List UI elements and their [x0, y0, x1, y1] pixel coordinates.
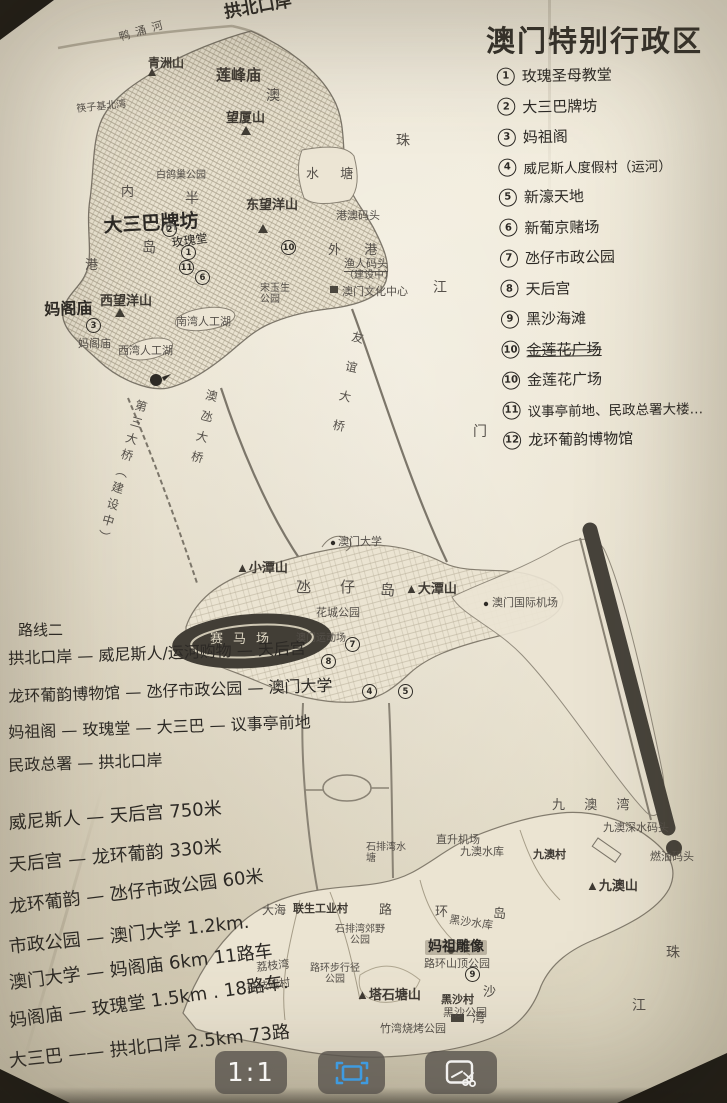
legend-item: 10金莲花广场	[502, 366, 703, 390]
roundabout	[323, 775, 371, 801]
crop-annotate-icon	[442, 1058, 480, 1088]
actual-size-button[interactable]: 1:1	[215, 1051, 287, 1094]
legend-item-label: 新濠天地	[524, 185, 584, 207]
aodang-bridge-line	[221, 388, 301, 561]
airport-dot	[484, 602, 488, 606]
map-label-xiwan-lake: 西湾人工湖	[118, 346, 173, 358]
map-label-datan-hill: ▲大潭山	[405, 582, 457, 596]
legend-item-label: 新葡京赌场	[524, 216, 599, 238]
roundabout-links	[305, 788, 389, 790]
map-label-zhuwan-bbq-park: 竹湾烧烤公园	[380, 1024, 446, 1036]
map-label-culture-center: 澳门文化中心	[342, 287, 408, 299]
legend-item-label: 天后宫	[525, 277, 570, 299]
route-heading: 路线二	[18, 622, 63, 638]
photo-canvas[interactable]: 拱北口岸 鸭涌河 青洲山 莲峰庙 澳 望厦山 筷子基北湾 水 塘 内 半 白鸽巢…	[0, 0, 727, 1103]
legend-item-label: 妈祖阁	[523, 126, 568, 148]
map-label-qingzhou-hill: 青洲山	[148, 57, 184, 70]
crop-annotate-button[interactable]	[425, 1051, 497, 1094]
legend-item-number: 11	[502, 401, 520, 419]
legend-item: 12龙环葡韵博物馆	[503, 426, 704, 450]
map-label-outer-harbour: 外 港	[328, 243, 387, 257]
map-marker-6: 6	[195, 270, 210, 285]
legend-item-label: 威尼斯人度假村（运河）	[523, 154, 672, 177]
legend-item-label: 大三巴牌坊	[522, 95, 597, 117]
map-label-zhu-char-bottom: 珠	[666, 947, 680, 962]
causeway-roads	[302, 703, 393, 893]
map-label-ao-char: 澳	[266, 90, 280, 105]
map-label-jiang-char-bottom: 江	[632, 1000, 646, 1015]
map-label-lu-char: 路	[379, 903, 392, 917]
fit-screen-button[interactable]	[318, 1051, 385, 1094]
map-marker-7: 7	[345, 637, 360, 652]
fit-screen-icon	[333, 1059, 371, 1087]
map-label-fuel-pier: 燃油码头	[650, 852, 694, 864]
legend-item-struck: 10金莲花广场	[501, 336, 702, 360]
map-label-dahai: 大海	[262, 904, 286, 917]
map-label-reservoir: 水 塘	[306, 167, 362, 181]
map-label-airport: 澳门国际机场	[492, 598, 558, 610]
map-label-men-char: 门	[473, 426, 487, 441]
legend-list: 1玫瑰圣母教堂 2大三巴牌坊 3妈祖阁 4威尼斯人度假村（运河） 5新濠天地 6…	[497, 62, 704, 460]
legend-item-label: 议事亭前地、民政总署大楼…	[527, 397, 703, 420]
map-label-sha-char: 沙	[483, 985, 496, 999]
legend-item-label: 金莲花广场	[527, 368, 602, 390]
map-label-nanwan-lake: 南湾人工湖	[176, 317, 231, 329]
map-label-fisherman-wharf-note: （建设中）	[344, 271, 394, 282]
map-label-songyusheng-park: 宋玉生公园	[260, 284, 298, 305]
map-label-ferry-terminal: 港澳码头	[336, 211, 380, 223]
map-marker-10: 10	[281, 240, 296, 255]
legend-item: 1玫瑰圣母教堂	[497, 62, 698, 86]
map-label-wangxia-hill: 望厦山	[226, 111, 265, 125]
map-marker-4: 4	[362, 684, 377, 699]
map-marker-3: 3	[86, 318, 101, 333]
map-label-jiuao-village: 九澳村	[533, 850, 566, 862]
map-label-ama-temple-print: 妈阁庙	[78, 339, 111, 351]
map-label-shipaiwan-reservoir: 石排湾水塘	[366, 843, 410, 864]
legend-item: 11议事亭前地、民政总署大楼…	[502, 397, 703, 420]
legend-item-number: 5	[499, 188, 517, 206]
friendship-bridge-line	[352, 309, 447, 562]
map-label-coloane-trail-park: 路环步行径公园	[306, 964, 364, 985]
map-label-tashitang-hill: ▲塔石塘山	[356, 988, 421, 1002]
map-label-dao-char: 岛	[142, 242, 156, 257]
legend-item-label: 金莲花广场	[526, 337, 601, 359]
map-label-zhu-char-top: 珠	[396, 135, 410, 150]
culture-center-block	[330, 286, 338, 293]
coloane-outline	[183, 812, 673, 1057]
map-label-nei-char: 内	[121, 185, 134, 199]
map-marker-11: 11	[179, 260, 194, 275]
map-label-shipaiwan-park: 石排湾郊野公园	[334, 925, 386, 946]
map-label-ban-char: 半	[185, 193, 199, 208]
legend-item-label: 龙环葡韵博物馆	[528, 427, 633, 450]
legend-item: 2大三巴牌坊	[497, 93, 698, 117]
map-label-lianfeng-temple: 莲峰庙	[216, 69, 261, 85]
map-marker-9: 9	[465, 967, 480, 982]
legend-item-number: 6	[499, 218, 517, 236]
map-label-ruins-st-paul: 大三巴牌坊	[103, 211, 199, 236]
map-marker-1: 1	[181, 245, 196, 260]
map-label-heisha-village: 黑沙村	[441, 995, 474, 1007]
actual-size-label: 1:1	[227, 1058, 275, 1088]
map-label-penha-hill: 西望洋山	[100, 294, 152, 308]
map-label-coloane-top-park: 路环山顶公园	[424, 959, 490, 971]
map-label-dao2-char: 岛	[380, 584, 395, 600]
legend-item-number: 4	[498, 158, 516, 176]
map-label-xiaotan-hill: ▲小潭山	[236, 561, 288, 575]
map-label-jiuao-reservoir: 九澳水库	[460, 847, 504, 859]
legend-item: 5新濠天地	[499, 183, 700, 207]
map-label-baigechao-park: 白鸽巢公园	[156, 171, 206, 182]
legend-item-number: 12	[503, 431, 521, 449]
legend-item-number: 9	[501, 310, 519, 328]
map-label-ama-temple-hand: 妈阁庙	[44, 299, 93, 318]
legend-item-number: 10	[502, 371, 520, 389]
legend-item-number: 10	[501, 340, 519, 358]
map-label-huacheng-park: 花城公园	[316, 608, 360, 620]
legend-item-number: 7	[500, 249, 518, 267]
legend-item-number: 3	[498, 128, 516, 146]
legend-item-label: 黑沙海滩	[526, 307, 586, 329]
map-label-gang-char: 港	[85, 258, 98, 272]
legend-item-label: 氹仔市政公园	[525, 246, 615, 269]
map-label-guia-hill: 东望洋山	[246, 198, 298, 212]
legend-item-number: 8	[500, 279, 518, 297]
legend-item: 7氹仔市政公园	[500, 244, 701, 268]
legend-item-number: 2	[497, 97, 515, 115]
legend-item: 3妈祖阁	[498, 123, 699, 147]
page-title: 澳门特别行政区	[486, 18, 703, 60]
map-label-heliport: 直升机场	[436, 835, 480, 847]
map-label-jiuao-bay: 九 澳 湾	[552, 798, 638, 812]
university-dot	[331, 541, 335, 545]
legend-item: 8天后宫	[500, 275, 701, 299]
map-marker-8: 8	[321, 654, 336, 669]
map-label-dang-char: 氹	[296, 581, 311, 597]
tower-marker	[150, 374, 162, 386]
map-label-macau-university: 澳门大学	[338, 537, 382, 549]
map-label-jiuao-hill: ▲九澳山	[586, 879, 638, 893]
legend-item-number: 1	[497, 67, 515, 85]
legend-item: 4威尼斯人度假村（运河）	[498, 154, 699, 177]
map-label-jiang-char-top: 江	[433, 282, 447, 297]
map-label-huan-char: 环	[435, 905, 448, 919]
legend-item: 9黑沙海滩	[501, 305, 702, 329]
map-label-deepwater-pier: 九澳深水码头	[603, 823, 669, 835]
legend-item: 6新葡京赌场	[499, 214, 700, 238]
legend-item-label: 玫瑰圣母教堂	[522, 64, 612, 87]
map-marker-2: 2	[162, 222, 177, 237]
map-label-zai-char: 仔	[340, 581, 355, 597]
map-label-mazu-statue: 妈祖雕像	[425, 940, 487, 955]
map-label-liansheng-village: 联生工业村	[293, 904, 348, 916]
map-label-dao3-char: 岛	[493, 907, 506, 921]
map-label-wan-char: 湾	[472, 1011, 485, 1025]
map-marker-5: 5	[398, 684, 413, 699]
